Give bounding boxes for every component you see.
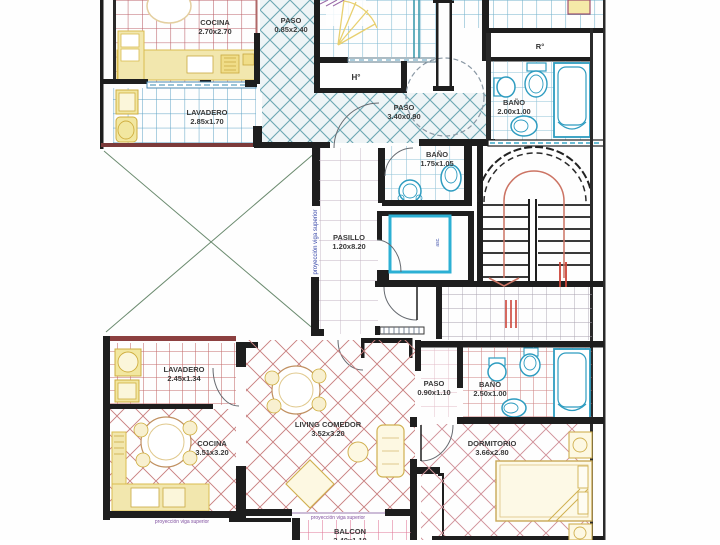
svg-text:2.70x2.70: 2.70x2.70 xyxy=(198,27,231,36)
svg-text:2.00x1.00: 2.00x1.00 xyxy=(497,107,530,116)
svg-text:1.75x1.05: 1.75x1.05 xyxy=(420,159,453,168)
svg-text:0.85x2.40: 0.85x2.40 xyxy=(274,25,307,34)
svg-text:LAVADERO: LAVADERO xyxy=(164,365,205,374)
svg-text:DORMITORIO: DORMITORIO xyxy=(468,439,517,448)
svg-text:R°: R° xyxy=(536,42,544,51)
svg-text:BALCON: BALCON xyxy=(334,527,366,536)
svg-text:BAÑO: BAÑO xyxy=(426,150,448,159)
svg-text:proyección viga superior: proyección viga superior xyxy=(313,209,319,274)
svg-text:3.40x0.90: 3.40x0.90 xyxy=(387,112,420,121)
svg-text:3.40x1.10: 3.40x1.10 xyxy=(333,536,366,540)
svg-text:2.50x1.00: 2.50x1.00 xyxy=(473,389,506,398)
svg-text:PASO: PASO xyxy=(281,16,302,25)
svg-text:LIVING COMEDOR: LIVING COMEDOR xyxy=(295,420,362,429)
svg-text:COCINA: COCINA xyxy=(200,18,230,27)
svg-text:BAÑO: BAÑO xyxy=(479,380,501,389)
svg-text:proyección viga superior: proyección viga superior xyxy=(155,519,210,525)
svg-text:2.85x1.70: 2.85x1.70 xyxy=(190,117,223,126)
svg-text:0.90x1.10: 0.90x1.10 xyxy=(417,388,450,397)
svg-text:PASO: PASO xyxy=(394,103,415,112)
svg-text:BAÑO: BAÑO xyxy=(503,98,525,107)
svg-text:PASO: PASO xyxy=(424,379,445,388)
svg-text:3.51x3.20: 3.51x3.20 xyxy=(195,448,228,457)
svg-text:3.52x3.20: 3.52x3.20 xyxy=(311,429,344,438)
svg-text:PASILLO: PASILLO xyxy=(333,233,365,242)
svg-text:H°: H° xyxy=(352,73,361,82)
svg-text:1.20x8.20: 1.20x8.20 xyxy=(332,242,365,251)
svg-text:asc.: asc. xyxy=(435,237,441,246)
svg-text:LAVADERO: LAVADERO xyxy=(187,108,228,117)
svg-text:3.66x2.80: 3.66x2.80 xyxy=(475,448,508,457)
svg-text:COCINA: COCINA xyxy=(197,439,227,448)
svg-text:2.45x1.34: 2.45x1.34 xyxy=(167,374,201,383)
